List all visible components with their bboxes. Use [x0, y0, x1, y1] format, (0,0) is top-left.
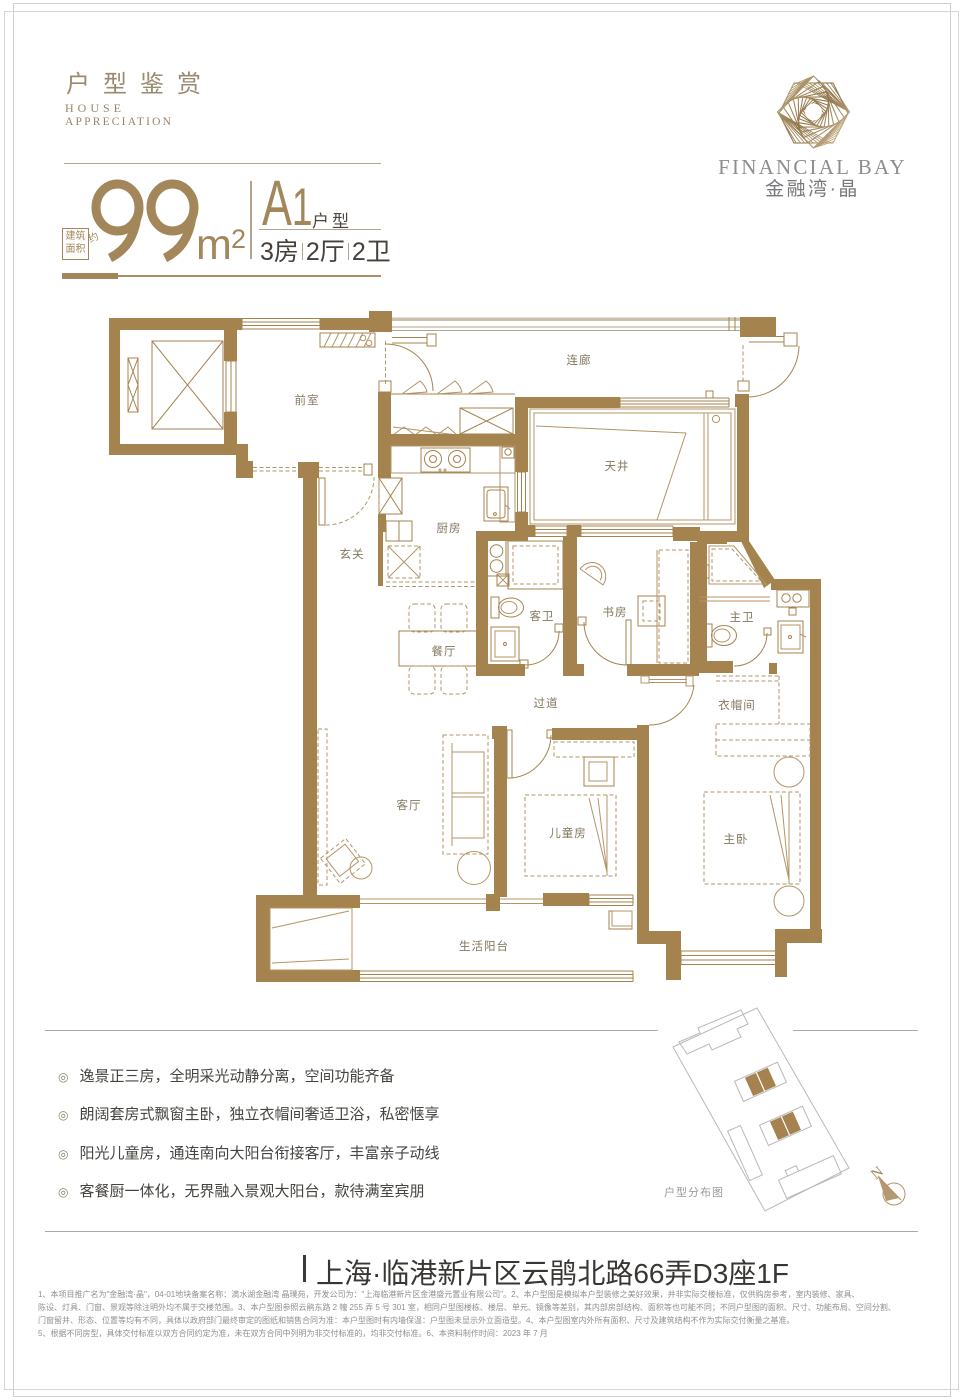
svg-text:N: N	[868, 1164, 887, 1183]
svg-text:户型分布图: 户型分布图	[664, 1185, 724, 1199]
svg-text:天井: 天井	[605, 459, 630, 473]
svg-text:玄关: 玄关	[340, 547, 365, 561]
svg-text:主卫: 主卫	[730, 611, 755, 624]
svg-text:儿童房: 儿童房	[549, 826, 587, 840]
svg-text:过道: 过道	[534, 696, 559, 710]
svg-text:连廊: 连廊	[567, 353, 592, 367]
svg-text:客卫: 客卫	[530, 609, 555, 623]
svg-text:生活阳台: 生活阳台	[459, 939, 509, 953]
svg-text:前室: 前室	[295, 393, 320, 407]
svg-text:书房: 书房	[603, 606, 628, 619]
svg-text:衣帽间: 衣帽间	[718, 698, 756, 712]
svg-text:客厅: 客厅	[397, 798, 422, 812]
svg-text:餐厅: 餐厅	[432, 644, 457, 658]
svg-text:厨房: 厨房	[437, 522, 462, 535]
svg-text:主卧: 主卧	[724, 833, 749, 846]
